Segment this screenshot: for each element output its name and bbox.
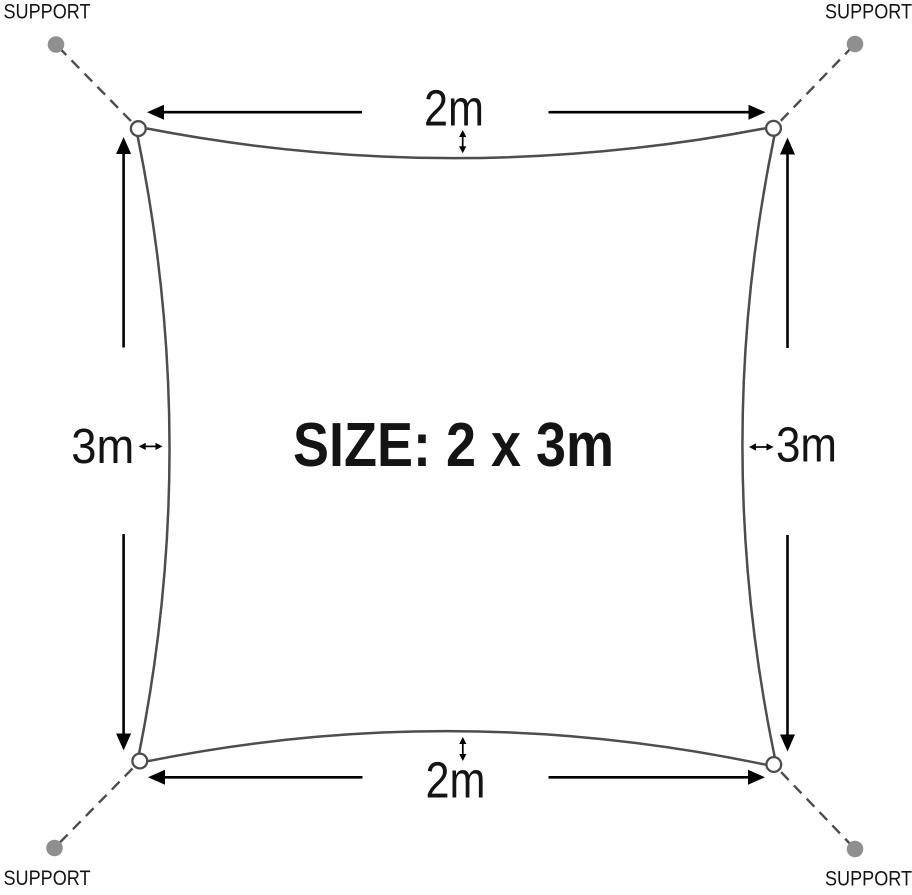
svg-text:SUPPORT: SUPPORT [825,0,912,23]
svg-text:SUPPORT: SUPPORT [825,867,912,890]
svg-text:3m: 3m [71,420,134,474]
svg-text:2m: 2m [426,752,486,809]
svg-text:3m: 3m [776,419,837,473]
svg-text:2m: 2m [424,80,484,137]
svg-text:SUPPORT: SUPPORT [4,0,91,23]
svg-text:SIZE: 2 x 3m: SIZE: 2 x 3m [293,411,614,480]
svg-text:SUPPORT: SUPPORT [4,867,91,890]
